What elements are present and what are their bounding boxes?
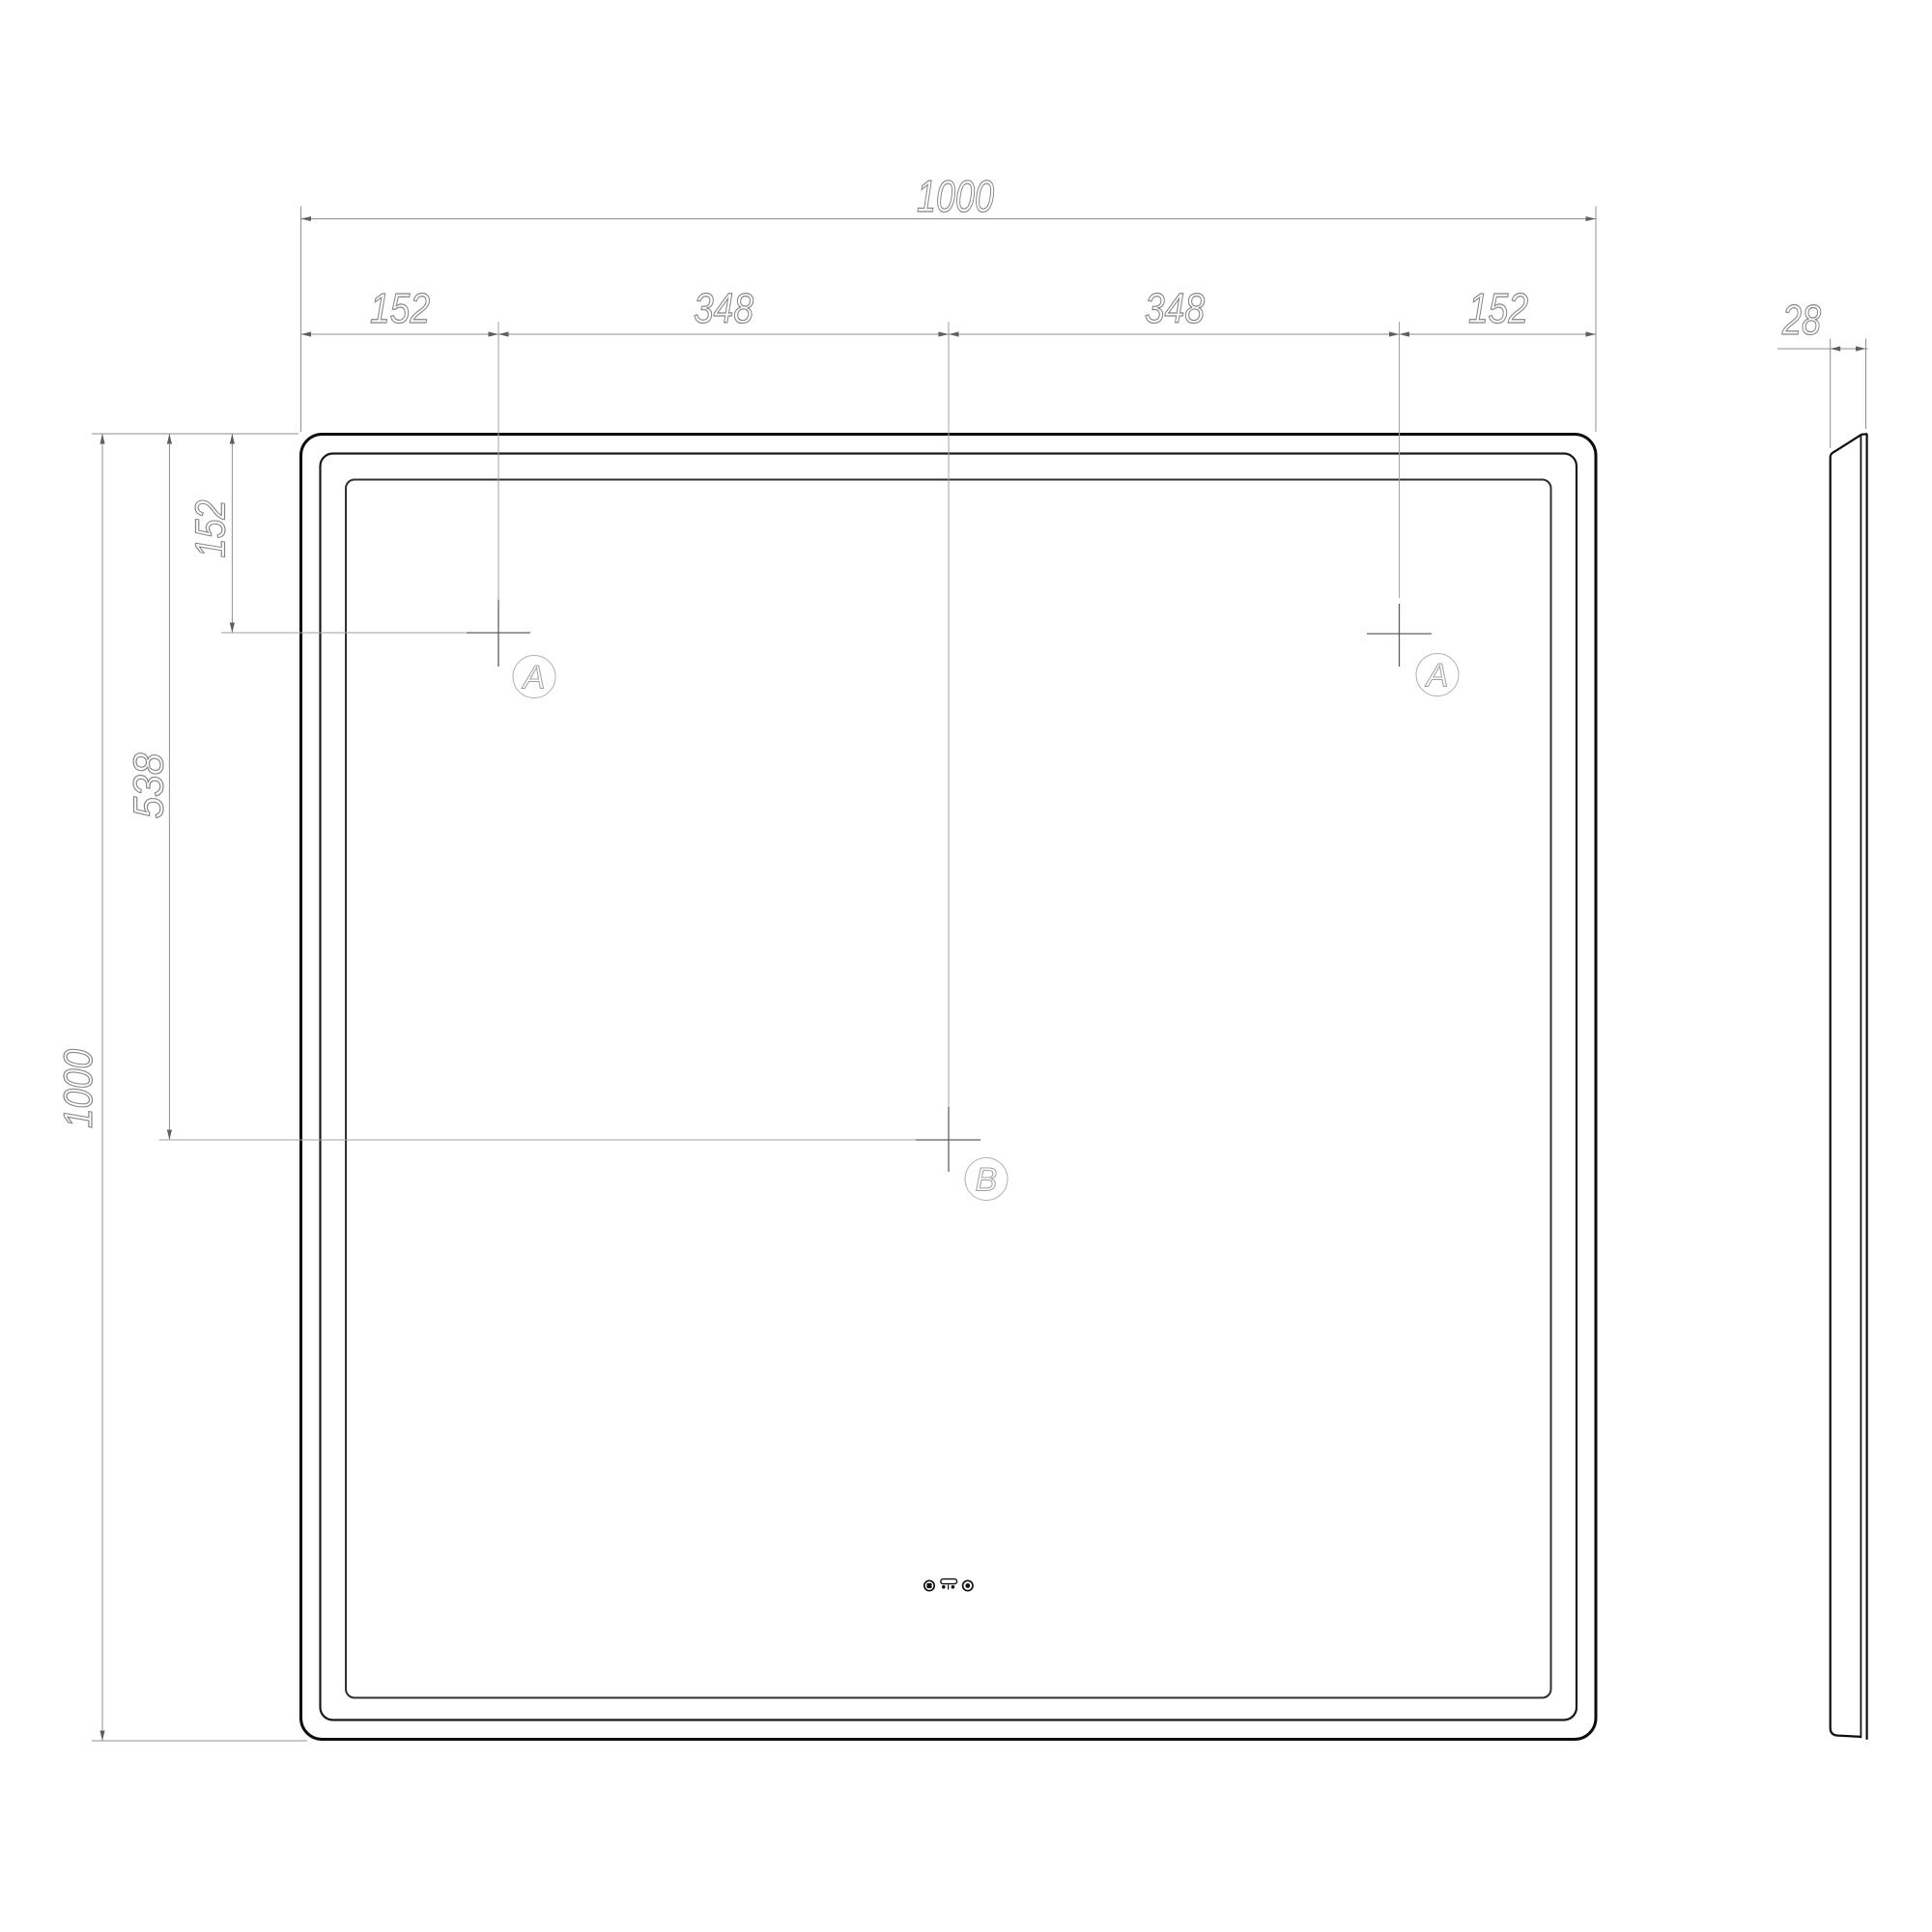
svg-text:1000: 1000: [917, 171, 994, 221]
svg-text:1000: 1000: [55, 1048, 100, 1128]
svg-text:348: 348: [1145, 285, 1205, 332]
svg-text:152: 152: [370, 285, 430, 332]
svg-text:A: A: [522, 660, 546, 696]
svg-text:348: 348: [694, 285, 753, 332]
svg-text:28: 28: [1781, 297, 1821, 344]
svg-text:152: 152: [1468, 285, 1528, 332]
svg-text:A: A: [1425, 658, 1449, 695]
svg-text:538: 538: [126, 753, 173, 818]
svg-text:B: B: [976, 1162, 998, 1199]
svg-text:152: 152: [187, 500, 235, 558]
